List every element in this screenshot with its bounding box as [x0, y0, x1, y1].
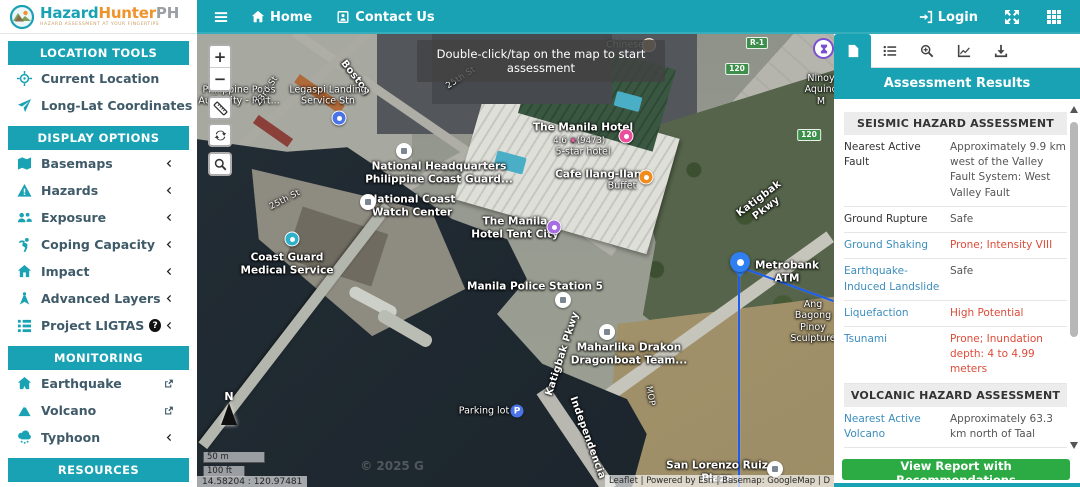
download-icon	[994, 44, 1008, 58]
hazard-link[interactable]: Nearest Active Volcano	[844, 412, 950, 442]
assessment-results-body: SEISMIC HAZARD ASSESSMENTNearest Active …	[834, 99, 1070, 454]
chevron-left-icon	[161, 294, 176, 303]
layers-icon	[17, 291, 32, 306]
zoom-in-button[interactable]: +	[210, 46, 230, 68]
section-header-seismic-hazard-assessment: SEISMIC HAZARD ASSESSMENT	[844, 112, 1067, 135]
panel-scrollbar[interactable]	[1070, 104, 1079, 451]
sidebar-item-label: Project LIGTAS	[41, 318, 144, 333]
sidebar-item-typhoon[interactable]: Typhoon	[0, 424, 197, 451]
assessment-row-ground-shaking: Ground ShakingProne; Intensity VIII	[844, 233, 1067, 259]
assessment-hint-banner: Double-click/tap on the map to start ass…	[417, 40, 665, 82]
map-search-button[interactable]	[208, 152, 232, 176]
sidebar-item-hazards[interactable]: Hazards	[0, 177, 197, 204]
map-canvas[interactable]: Philippine Ports Authority - Port...23rd…	[197, 34, 834, 487]
chevron-left-icon	[161, 321, 176, 330]
hazard-link[interactable]: Nearest Potentially Active Volcano	[844, 453, 950, 454]
fuel-station-marker	[332, 111, 347, 126]
sidebar-item-current-location[interactable]: Current Location	[0, 65, 197, 92]
hotel-marker	[619, 129, 634, 144]
sidebar-item-exposure[interactable]: Exposure	[0, 204, 197, 231]
nav-login[interactable]: Login	[919, 10, 978, 25]
parking-marker: P	[511, 405, 524, 418]
capacity-icon	[17, 237, 32, 252]
assessment-row-earthquake-induced-landslide: Earthquake-Induced LandslideSafe	[844, 259, 1067, 300]
sidebar-header-monitoring: MONITORING	[8, 346, 189, 370]
sidebar-item-basemaps[interactable]: Basemaps	[0, 150, 197, 177]
police-station-marker	[555, 292, 571, 308]
hamburger-icon[interactable]	[213, 10, 229, 24]
sidebar-item-label: Long-Lat Coordinates	[41, 98, 192, 113]
sidebar-header-location-tools: LOCATION TOOLS	[8, 41, 189, 65]
hazard-value: Prone; Inundation depth: 4 to 4.99 meter…	[950, 332, 1067, 378]
scroll-up-arrow-icon[interactable]	[1070, 106, 1078, 113]
earthquake-icon	[17, 376, 32, 391]
users-icon	[17, 210, 32, 225]
hazard-value: Prone; Intensity VIII	[950, 238, 1067, 253]
road-badge-120: 120	[725, 63, 749, 75]
north-arrow: N	[221, 390, 237, 425]
hazardhunter-app: HazardHunterPH HAZARD ASSESSMENT AT YOUR…	[0, 0, 1080, 487]
hazard-link[interactable]: Ground Shaking	[844, 238, 950, 253]
scale-bar-metric: 50 m	[203, 452, 265, 463]
hazard-link[interactable]: Liquefaction	[844, 306, 950, 321]
sidebar-nav: LOCATION TOOLSCurrent LocationLong-Lat C…	[0, 41, 197, 482]
chart-line-icon	[957, 44, 971, 58]
hazardhunter-logo-icon	[10, 5, 34, 29]
top-navbar: Home Contact Us Login	[197, 0, 1080, 34]
assessment-row-tsunami: TsunamiProne; Inundation depth: 4 to 4.9…	[844, 327, 1067, 384]
assessment-row-nearest-active-fault: Nearest Active FaultApproximately 9.9 km…	[844, 135, 1067, 207]
hazard-label: Ground Rupture	[844, 212, 950, 227]
zoom-tab[interactable]	[908, 34, 945, 68]
panel-toolbar	[834, 34, 1080, 68]
coast-guard-hq-marker	[396, 143, 412, 159]
assessment-row-nearest-potentially-active-volcano: Nearest Potentially Active VolcanoApprox…	[844, 448, 1067, 454]
sidebar-item-label: Typhoon	[41, 430, 161, 445]
logo[interactable]: HazardHunterPH HAZARD ASSESSMENT AT YOUR…	[0, 0, 197, 34]
chevron-left-icon	[161, 213, 176, 222]
list-icon	[17, 318, 32, 333]
hourglass-icon	[819, 44, 829, 54]
hazard-value: High Potential	[950, 306, 1067, 321]
chevron-left-icon	[161, 186, 176, 195]
hazard-link[interactable]: Earthquake-Induced Landslide	[844, 264, 950, 294]
zoom-control: + −	[208, 44, 232, 92]
sidebar-item-earthquake[interactable]: Earthquake	[0, 370, 197, 397]
search-plus-icon	[920, 44, 934, 58]
panel-footer-bar	[834, 483, 1080, 487]
view-report-button[interactable]: View Report with Recommendations	[842, 459, 1070, 480]
nav-contact-us[interactable]: Contact Us	[336, 10, 434, 25]
sidebar-item-label: Earthquake	[41, 376, 156, 391]
assessment-line	[738, 266, 740, 487]
fullscreen-icon[interactable]	[1004, 9, 1020, 25]
map-icon	[17, 156, 32, 171]
zoom-out-button[interactable]: −	[210, 68, 230, 90]
sidebar-item-label: Impact	[41, 264, 161, 279]
watch-center-marker	[360, 194, 376, 210]
cursor-coordinates: 14.58204 : 120.97481	[197, 476, 307, 487]
warning-icon	[17, 183, 32, 198]
scrollbar-thumb[interactable]	[1070, 122, 1078, 337]
chevron-left-icon	[161, 267, 176, 276]
hazard-label: Nearest Active Fault	[844, 140, 950, 201]
dragonboat-marker	[599, 324, 615, 340]
hazard-value: Safe	[950, 264, 1067, 294]
sidebar-item-label: Hazards	[41, 183, 161, 198]
legend-tab[interactable]	[871, 34, 908, 68]
ruler-icon	[213, 101, 228, 116]
hazard-link[interactable]: Tsunami	[844, 332, 950, 378]
report-tab[interactable]	[834, 34, 871, 68]
typhoon-icon	[17, 430, 32, 445]
chevron-left-icon	[161, 159, 176, 168]
history-button[interactable]	[813, 38, 834, 59]
assessment-row-ground-rupture: Ground RuptureSafe	[844, 207, 1067, 233]
chevron-left-icon	[161, 240, 176, 249]
apps-grid-icon[interactable]	[1046, 9, 1062, 25]
sidebar-item-impact[interactable]: Impact	[0, 258, 197, 285]
help-icon[interactable]: ?	[149, 319, 161, 332]
hazard-value: Approximately 48.5 km northeast of Corre…	[950, 453, 1067, 454]
brand-tagline: HAZARD ASSESSMENT AT YOUR FINGERTIPS	[40, 23, 179, 28]
assessment-row-liquefaction: LiquefactionHigh Potential	[844, 301, 1067, 327]
road-badge-r-1: R-1	[746, 37, 768, 49]
sidebar-header-display-options: DISPLAY OPTIONS	[8, 126, 189, 150]
assessment-pin[interactable]	[730, 252, 750, 272]
sidebar-item-label: Volcano	[41, 403, 156, 418]
refresh-icon	[214, 129, 227, 142]
search-icon	[214, 158, 227, 171]
sidebar-item-label: Exposure	[41, 210, 161, 225]
scroll-down-arrow-icon[interactable]	[1070, 442, 1078, 449]
sidebar-item-project-ligtas[interactable]: Project LIGTAS?	[0, 312, 197, 339]
volcano-icon	[17, 403, 32, 418]
medical-marker	[285, 232, 300, 247]
sidebar-item-label: Advanced Layers	[41, 291, 161, 306]
sidebar-item-coping-capacity[interactable]: Coping Capacity	[0, 231, 197, 258]
sidebar-item-label: Current Location	[41, 71, 185, 86]
refresh-button[interactable]	[208, 123, 232, 147]
hazard-value: Approximately 9.9 km west of the Valley …	[950, 140, 1067, 201]
sign-in-icon	[919, 10, 933, 24]
home-icon	[251, 10, 265, 24]
sidebar: HazardHunterPH HAZARD ASSESSMENT AT YOUR…	[0, 0, 197, 487]
external-link-icon	[161, 406, 176, 416]
sidebar-item-volcano[interactable]: Volcano	[0, 397, 197, 424]
sidebar-item-advanced-layers[interactable]: Advanced Layers	[0, 285, 197, 312]
hazard-value: Safe	[950, 212, 1067, 227]
assessment-panel: Assessment Results SEISMIC HAZARD ASSESS…	[834, 34, 1080, 487]
north-arrow-icon	[221, 403, 237, 425]
restaurant-marker	[639, 170, 654, 185]
road-badge-120: 120	[797, 129, 821, 141]
impact-icon	[17, 264, 32, 279]
measure-button[interactable]	[208, 96, 232, 120]
section-header-volcanic-hazard-assessment: VOLCANIC HAZARD ASSESSMENT	[844, 384, 1067, 407]
chart-tab[interactable]	[945, 34, 982, 68]
sidebar-header-resources: RESOURCES	[8, 458, 189, 482]
sidebar-item-label: Coping Capacity	[41, 237, 161, 252]
download-tab[interactable]	[982, 34, 1019, 68]
brand-title: HazardHunterPH	[40, 6, 179, 21]
map-attribution: Leaflet | Powered by Esri | Basemap: Goo…	[605, 475, 834, 487]
nav-home[interactable]: Home	[251, 10, 312, 25]
hazard-value: Approximately 63.3 km north of Taal	[950, 412, 1067, 442]
contact-card-icon	[336, 10, 350, 24]
tent-city-marker	[547, 220, 562, 235]
paper-plane-icon	[17, 98, 32, 113]
panel-title: Assessment Results	[834, 68, 1080, 99]
sidebar-item-label: Basemaps	[41, 156, 161, 171]
chevron-left-icon	[161, 433, 176, 442]
file-icon	[846, 44, 860, 58]
crosshair-icon	[17, 71, 32, 86]
list-ul-icon	[883, 44, 897, 58]
sidebar-item-long-lat-coordinates[interactable]: Long-Lat Coordinates	[0, 92, 197, 119]
assessment-row-nearest-active-volcano: Nearest Active VolcanoApproximately 63.3…	[844, 407, 1067, 448]
external-link-icon	[161, 379, 176, 389]
